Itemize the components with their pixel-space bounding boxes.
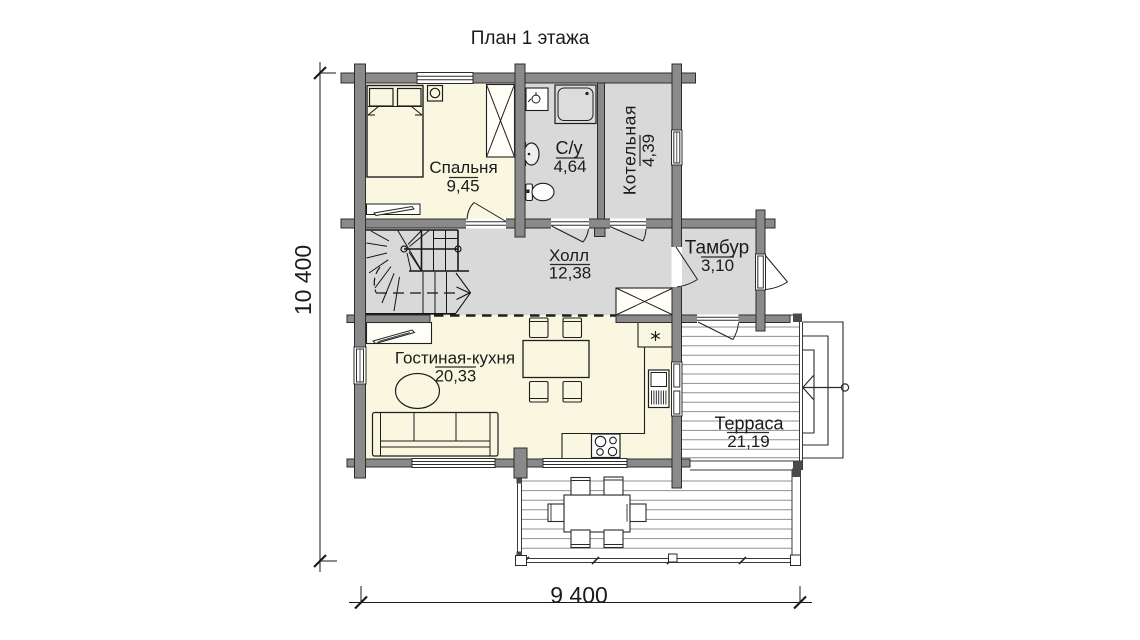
svg-text:10 400: 10 400	[290, 245, 316, 315]
svg-text:9,45: 9,45	[446, 177, 479, 196]
svg-text:Спальня: Спальня	[429, 158, 497, 177]
svg-text:4,64: 4,64	[553, 157, 586, 176]
svg-text:Холл: Холл	[549, 246, 589, 265]
svg-text:С/у: С/у	[556, 138, 583, 158]
svg-text:Терраса: Терраса	[714, 414, 784, 434]
svg-text:3,10: 3,10	[701, 256, 734, 275]
svg-text:Котельная: Котельная	[620, 105, 640, 195]
svg-text:Гостиная-кухня: Гостиная-кухня	[395, 349, 515, 368]
svg-text:12,38: 12,38	[549, 264, 592, 283]
svg-text:9 400: 9 400	[550, 582, 608, 608]
svg-text:20,33: 20,33	[435, 368, 476, 386]
svg-text:4,39: 4,39	[639, 134, 658, 167]
svg-text:21,19: 21,19	[727, 432, 770, 451]
svg-text:План 1 этажа: План 1 этажа	[471, 28, 590, 49]
